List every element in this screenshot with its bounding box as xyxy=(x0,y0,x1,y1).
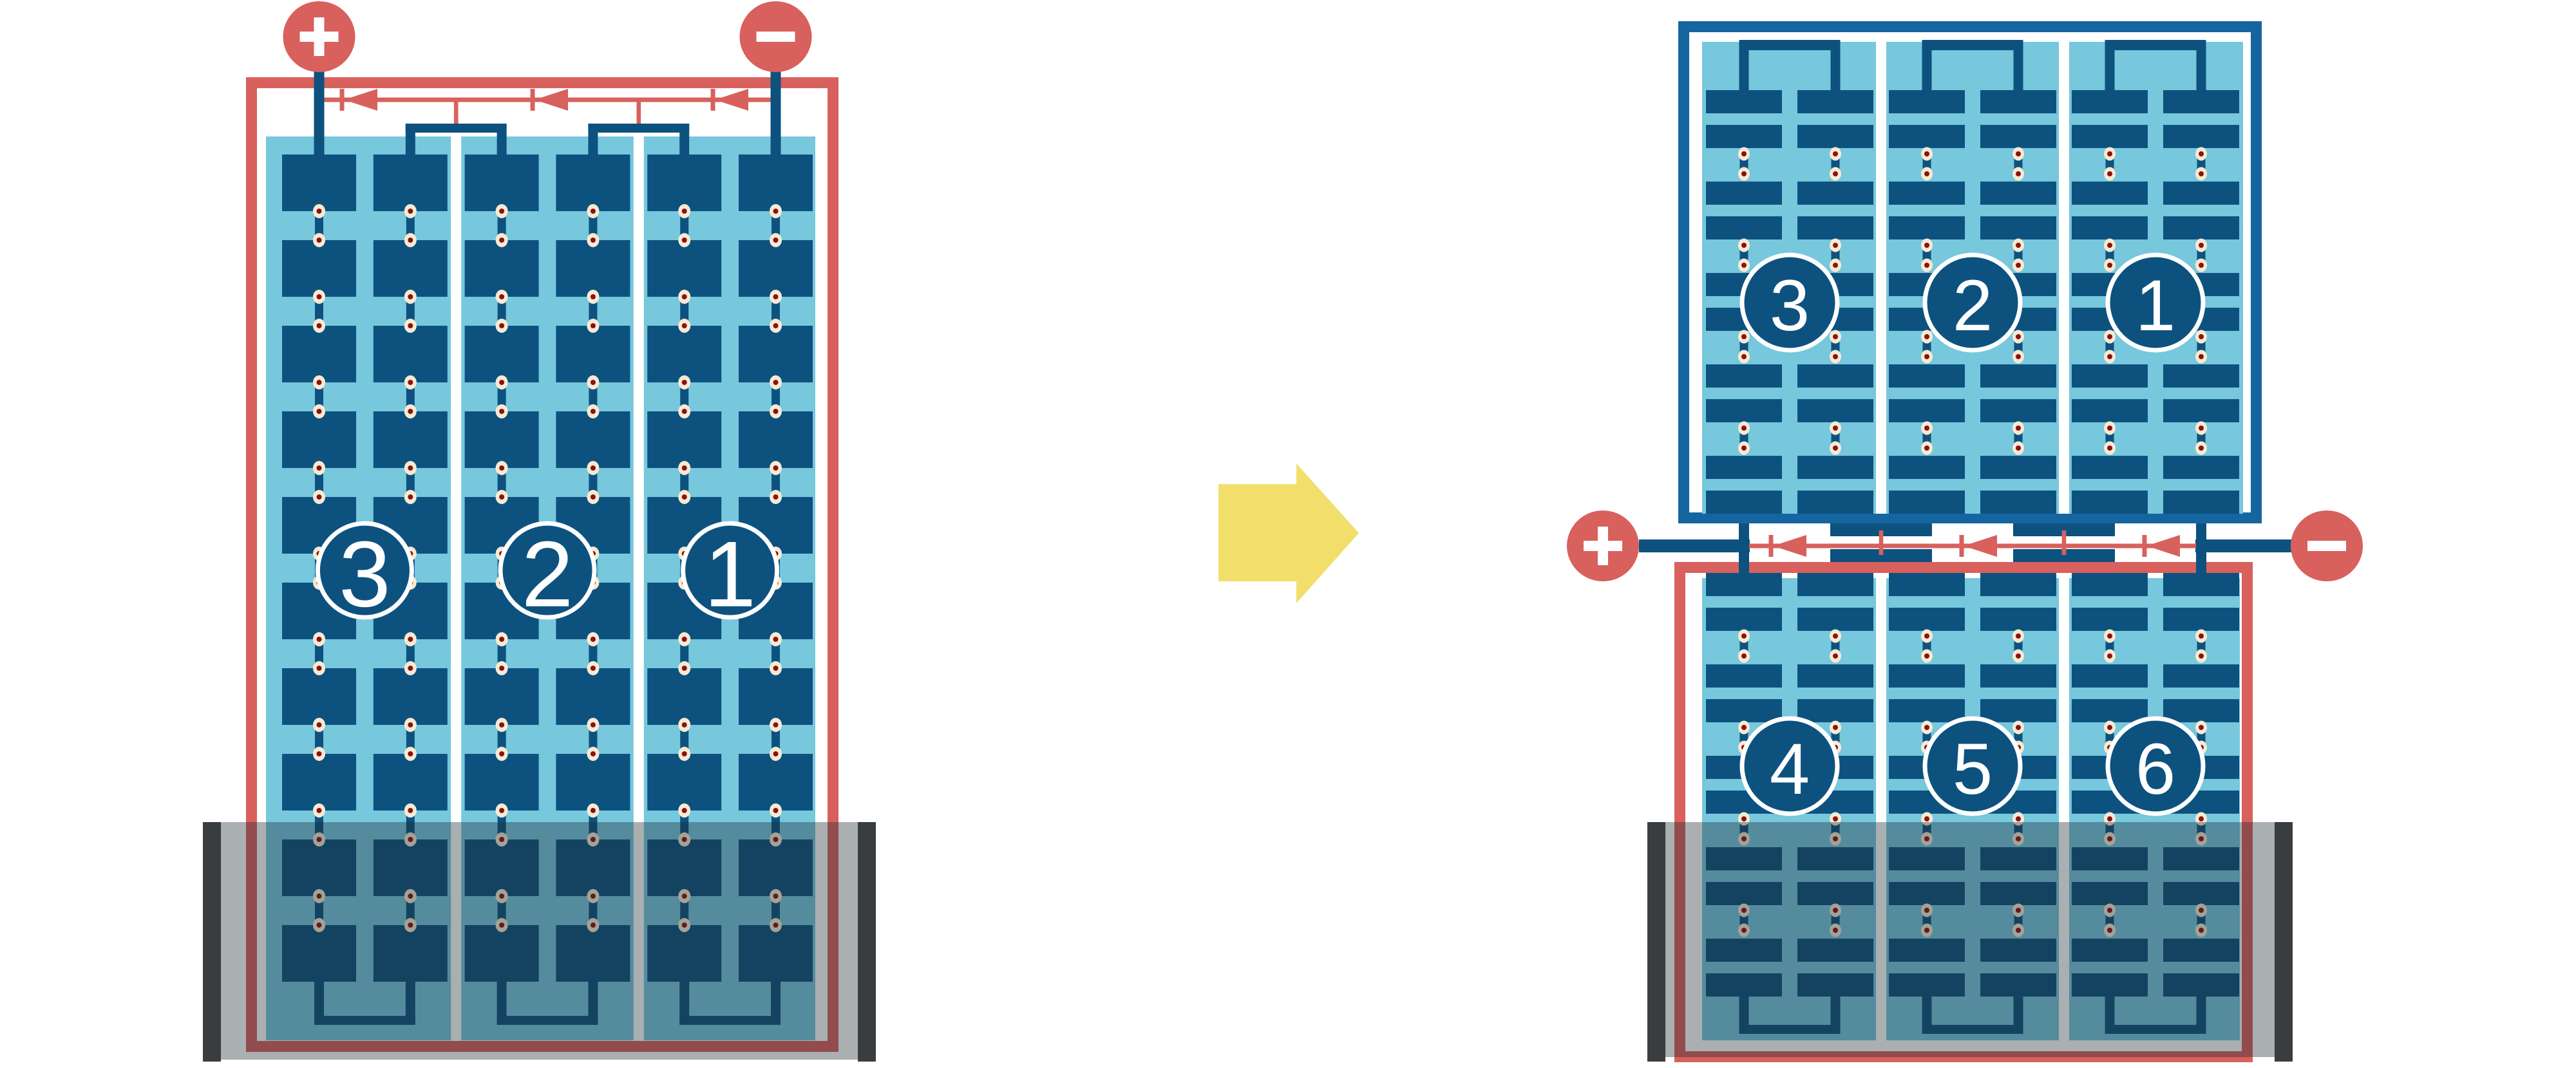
solder-dot-core xyxy=(408,722,413,727)
left-module: 321 xyxy=(203,1,876,1062)
solder-dot-core xyxy=(1833,725,1838,730)
solder-dot-core xyxy=(408,238,413,243)
solar-cell xyxy=(2163,182,2239,205)
solar-cell xyxy=(2072,399,2148,422)
solder-dot-core xyxy=(408,380,413,385)
solder-dot-core xyxy=(682,637,687,642)
solar-cell xyxy=(647,668,721,725)
solar-cell xyxy=(1889,364,1965,388)
solar-cell xyxy=(465,326,539,382)
solar-cell xyxy=(282,668,356,725)
solar-cell xyxy=(2072,216,2148,239)
solar-cell xyxy=(1980,90,2056,113)
solar-cell xyxy=(1797,90,1873,113)
solder-dot-core xyxy=(317,637,322,642)
solder-dot-core xyxy=(2016,263,2021,268)
solder-dot-core xyxy=(499,494,504,500)
solder-dot-core xyxy=(2107,243,2112,248)
solder-dot-core xyxy=(773,238,779,243)
solar-cell xyxy=(1980,664,2056,688)
solder-dot-core xyxy=(499,637,504,642)
terminal-wire xyxy=(1639,539,1750,552)
solar-cell xyxy=(1797,573,1873,596)
string-number-label: 2 xyxy=(522,522,574,626)
solar-cell xyxy=(1980,699,2056,722)
solar-cell xyxy=(2072,664,2148,688)
solder-dot-core xyxy=(1741,426,1747,431)
diode-bus-stub xyxy=(454,100,459,124)
solder-dot-core xyxy=(682,751,687,756)
solar-cell xyxy=(556,411,630,468)
bypass-diode-icon xyxy=(2143,535,2181,557)
solar-cell xyxy=(1706,608,1782,631)
solder-dot-core xyxy=(682,209,687,214)
solder-dot-core xyxy=(317,380,322,385)
diode-cathode-bar xyxy=(2143,535,2147,557)
solar-cell xyxy=(2072,491,2148,514)
solder-dot-core xyxy=(591,238,596,243)
solar-cell xyxy=(374,155,448,211)
solder-dot-core xyxy=(1833,334,1838,339)
solder-dot-core xyxy=(408,323,413,328)
solder-dot-core xyxy=(317,323,322,328)
solder-dot-core xyxy=(1741,725,1747,730)
solder-dot-core xyxy=(317,722,322,727)
plus-terminal xyxy=(1567,511,1639,581)
solar-cell xyxy=(1706,216,1782,239)
solder-dot-core xyxy=(1924,633,1929,639)
jumper-bar xyxy=(2105,40,2206,50)
solar-cell xyxy=(739,668,813,725)
solar-cell xyxy=(1797,216,1873,239)
string-number-badge: 1 xyxy=(2108,255,2203,350)
solder-dot-core xyxy=(1741,445,1747,451)
minus-icon xyxy=(2307,541,2346,551)
plus-icon xyxy=(1598,527,1608,565)
jumper-bar xyxy=(1922,40,2023,50)
solder-dot-core xyxy=(2107,445,2112,451)
solder-dot-core xyxy=(1833,816,1838,821)
shade-overlay xyxy=(1647,822,2293,1057)
bypass-diode-icon xyxy=(531,89,569,111)
jumper-bar xyxy=(588,124,689,133)
solder-dot-core xyxy=(2199,151,2204,156)
solder-dot-core xyxy=(2016,243,2021,248)
solder-dot-core xyxy=(2199,633,2204,639)
solar-cell xyxy=(1889,491,1965,514)
solder-dot-core xyxy=(2199,445,2204,451)
solar-cell xyxy=(1706,664,1782,688)
solar-cell xyxy=(2163,491,2239,514)
solar-cell xyxy=(1797,608,1873,631)
solder-dot-core xyxy=(2199,725,2204,730)
solar-cell xyxy=(1706,456,1782,479)
solder-dot-core xyxy=(773,465,779,471)
solar-cell xyxy=(1889,699,1965,722)
solder-dot-core xyxy=(317,465,322,471)
solar-cell xyxy=(739,240,813,297)
solar-cell xyxy=(1980,491,2056,514)
solder-dot-core xyxy=(2016,633,2021,639)
solar-cell xyxy=(2163,364,2239,388)
solar-cell xyxy=(1980,456,2056,479)
diode-triangle xyxy=(715,89,748,111)
solder-dot-core xyxy=(499,409,504,414)
solar-cell xyxy=(1980,125,2056,148)
solder-dot-core xyxy=(408,494,413,500)
solder-dot-core xyxy=(1924,445,1929,451)
solder-dot-core xyxy=(499,751,504,756)
solder-dot-core xyxy=(499,808,504,813)
flow-arrow-icon xyxy=(1218,464,1359,603)
string-number-label: 3 xyxy=(1770,265,1810,346)
pv-module-shading-diagram: 321342516 xyxy=(0,0,2576,1068)
string-number-badge: 5 xyxy=(1925,718,2020,814)
solar-cell xyxy=(1889,664,1965,688)
solar-cell xyxy=(2072,364,2148,388)
solar-cell xyxy=(556,326,630,382)
solder-dot-core xyxy=(591,751,596,756)
solder-dot-core xyxy=(2016,354,2021,359)
solder-dot-core xyxy=(591,722,596,727)
solar-cell xyxy=(1889,90,1965,113)
solder-dot-core xyxy=(682,294,687,299)
solar-cell xyxy=(1706,125,1782,148)
solar-cell xyxy=(374,411,448,468)
solar-cell xyxy=(2163,216,2239,239)
solar-cell xyxy=(1980,608,2056,631)
solder-dot-core xyxy=(591,380,596,385)
solar-cell xyxy=(647,240,721,297)
solar-cell xyxy=(374,240,448,297)
solar-cell xyxy=(1980,182,2056,205)
solar-cell xyxy=(647,326,721,382)
solar-cell xyxy=(647,155,721,211)
solar-cell xyxy=(556,668,630,725)
solder-dot-core xyxy=(1833,151,1838,156)
string-number-badge: 2 xyxy=(1925,255,2020,350)
solar-cell xyxy=(1706,491,1782,514)
solder-dot-core xyxy=(1833,171,1838,176)
solder-dot-core xyxy=(682,465,687,471)
solder-dot-core xyxy=(682,666,687,671)
string-number-label: 6 xyxy=(2136,729,2175,809)
solar-cell xyxy=(1980,216,2056,239)
solder-dot-core xyxy=(1741,334,1747,339)
diode-bus-stub xyxy=(637,100,641,124)
column-gap xyxy=(2059,42,2069,514)
solder-dot-core xyxy=(591,323,596,328)
solar-cell xyxy=(647,411,721,468)
solder-dot-core xyxy=(2199,243,2204,248)
solder-dot-core xyxy=(591,209,596,214)
shade-post xyxy=(858,822,876,1062)
shade-overlay xyxy=(203,822,876,1060)
diode-cathode-bar xyxy=(531,89,535,111)
jumper-bar xyxy=(406,124,507,133)
column-gap xyxy=(1876,42,1886,514)
solder-dot-core xyxy=(317,409,322,414)
diode-bus-stub xyxy=(1879,530,1884,555)
solar-cell xyxy=(1889,182,1965,205)
solder-dot-core xyxy=(1833,653,1838,659)
solder-dot-core xyxy=(499,294,504,299)
solder-dot-core xyxy=(408,666,413,671)
solar-cell xyxy=(1889,456,1965,479)
solder-dot-core xyxy=(2016,334,2021,339)
solder-dot-core xyxy=(1741,354,1747,359)
string-number-label: 1 xyxy=(2136,265,2175,346)
solder-dot-core xyxy=(499,666,504,671)
solder-dot-core xyxy=(2107,816,2112,821)
solder-dot-core xyxy=(2107,354,2112,359)
solder-dot-core xyxy=(591,494,596,500)
bypass-diode-icon xyxy=(711,89,749,111)
solder-dot-core xyxy=(2107,334,2112,339)
string-number-label: 3 xyxy=(339,522,391,626)
solder-dot-core xyxy=(2016,151,2021,156)
solar-cell xyxy=(282,754,356,810)
solder-dot-core xyxy=(591,409,596,414)
diode-triangle xyxy=(1964,535,1997,557)
solar-cell xyxy=(282,240,356,297)
solder-dot-core xyxy=(1924,334,1929,339)
solar-cell xyxy=(647,754,721,810)
solder-dot-core xyxy=(682,808,687,813)
solar-cell xyxy=(1706,182,1782,205)
solar-cell xyxy=(465,668,539,725)
solder-dot-core xyxy=(499,323,504,328)
minus-terminal xyxy=(740,1,812,72)
solder-dot-core xyxy=(499,465,504,471)
solder-dot-core xyxy=(499,209,504,214)
solar-cell xyxy=(374,668,448,725)
string-number-badge: 4 xyxy=(1742,718,1837,814)
solder-dot-core xyxy=(408,409,413,414)
solar-cell xyxy=(1797,664,1873,688)
diode-bus-stub xyxy=(2062,530,2067,555)
solder-dot-core xyxy=(2016,725,2021,730)
solar-cell xyxy=(2072,90,2148,113)
solder-dot-core xyxy=(682,494,687,500)
solder-dot-core xyxy=(2199,426,2204,431)
solder-dot-core xyxy=(2199,816,2204,821)
solder-dot-core xyxy=(408,637,413,642)
diode-triangle xyxy=(1773,535,1806,557)
solder-dot-core xyxy=(773,409,779,414)
solder-dot-core xyxy=(1833,354,1838,359)
solder-dot-core xyxy=(591,465,596,471)
solder-dot-core xyxy=(408,294,413,299)
terminal-wire xyxy=(314,63,325,169)
solder-dot-core xyxy=(773,323,779,328)
solder-dot-core xyxy=(682,323,687,328)
diode-cathode-bar xyxy=(340,89,345,111)
solar-cell xyxy=(2163,664,2239,688)
diode-cathode-bar xyxy=(1960,535,1964,557)
solar-cell xyxy=(1980,399,2056,422)
solar-cell xyxy=(1706,699,1782,722)
solder-dot-core xyxy=(1924,263,1929,268)
diode-triangle xyxy=(535,89,568,111)
solar-cell xyxy=(465,240,539,297)
solder-dot-core xyxy=(773,294,779,299)
solar-cell xyxy=(465,155,539,211)
solar-cell xyxy=(1889,399,1965,422)
solar-cell xyxy=(1889,216,1965,239)
diode-triangle xyxy=(2146,535,2180,557)
solder-dot-core xyxy=(2107,151,2112,156)
right-module: 342516 xyxy=(1567,27,2363,1062)
solder-dot-core xyxy=(2199,653,2204,659)
solder-dot-core xyxy=(773,722,779,727)
solder-dot-core xyxy=(2016,171,2021,176)
jumper-bar xyxy=(1739,40,1841,50)
solder-dot-core xyxy=(591,637,596,642)
solar-cell xyxy=(2072,573,2148,596)
string-number-label: 4 xyxy=(1770,729,1810,809)
solder-dot-core xyxy=(591,808,596,813)
solar-cell xyxy=(1797,399,1873,422)
solder-dot-core xyxy=(408,209,413,214)
solder-dot-core xyxy=(2107,426,2112,431)
solar-cell xyxy=(374,754,448,810)
solar-cell xyxy=(556,155,630,211)
solder-dot-core xyxy=(2107,725,2112,730)
solar-cell xyxy=(2163,608,2239,631)
solder-dot-core xyxy=(591,294,596,299)
shade-post xyxy=(1647,822,1665,1062)
solder-dot-core xyxy=(2016,816,2021,821)
solder-dot-core xyxy=(317,751,322,756)
solder-dot-core xyxy=(773,380,779,385)
solder-dot-core xyxy=(682,238,687,243)
string-number-label: 2 xyxy=(1953,265,1993,346)
solder-dot-core xyxy=(773,209,779,214)
solar-cell xyxy=(2072,182,2148,205)
solar-cell xyxy=(1797,182,1873,205)
solder-dot-core xyxy=(2199,354,2204,359)
solder-dot-core xyxy=(2016,653,2021,659)
string-number-label: 5 xyxy=(1953,729,1993,809)
solar-cell xyxy=(374,326,448,382)
solar-cell xyxy=(1797,491,1873,514)
solar-cell xyxy=(739,754,813,810)
solar-cell xyxy=(2163,699,2239,722)
solder-dot-core xyxy=(1741,816,1747,821)
terminal-wire xyxy=(771,63,781,169)
solder-dot-core xyxy=(1741,263,1747,268)
solder-dot-core xyxy=(1924,653,1929,659)
solder-dot-core xyxy=(591,666,596,671)
solar-cell xyxy=(739,411,813,468)
solar-cell xyxy=(2072,456,2148,479)
solar-cell xyxy=(556,754,630,810)
solder-dot-core xyxy=(1833,633,1838,639)
solder-dot-core xyxy=(1741,171,1747,176)
bypass-diode-icon xyxy=(1769,535,1807,557)
solar-cell xyxy=(465,411,539,468)
solar-cell xyxy=(2163,125,2239,148)
solder-dot-core xyxy=(2016,426,2021,431)
solder-dot-core xyxy=(408,808,413,813)
solder-dot-core xyxy=(2107,653,2112,659)
solder-dot-core xyxy=(2199,334,2204,339)
solar-cell xyxy=(1797,364,1873,388)
solder-dot-core xyxy=(317,808,322,813)
solder-dot-core xyxy=(1741,633,1747,639)
solder-dot-core xyxy=(773,637,779,642)
solder-dot-core xyxy=(2107,633,2112,639)
plus-terminal xyxy=(283,1,355,72)
solar-cell xyxy=(2163,456,2239,479)
solder-dot-core xyxy=(2199,263,2204,268)
solder-dot-core xyxy=(1924,171,1929,176)
bypass-diode-icon xyxy=(340,89,378,111)
plus-icon xyxy=(314,17,325,56)
solar-cell xyxy=(2072,608,2148,631)
bypass-diode-icon xyxy=(1960,535,1998,557)
solar-cell xyxy=(465,754,539,810)
solar-cell xyxy=(556,240,630,297)
solar-cell xyxy=(1706,90,1782,113)
solder-dot-core xyxy=(2107,171,2112,176)
solder-dot-core xyxy=(1924,816,1929,821)
solder-dot-core xyxy=(682,380,687,385)
solder-dot-core xyxy=(317,238,322,243)
solar-cell xyxy=(1706,364,1782,388)
solder-dot-core xyxy=(773,808,779,813)
solar-cell xyxy=(1889,608,1965,631)
string-number-badge: 3 xyxy=(1742,255,1837,350)
solar-cell xyxy=(282,411,356,468)
solder-dot-core xyxy=(1924,243,1929,248)
solder-dot-core xyxy=(682,722,687,727)
solder-dot-core xyxy=(1924,354,1929,359)
solder-dot-core xyxy=(1833,426,1838,431)
shade-post xyxy=(2275,822,2293,1062)
solder-dot-core xyxy=(773,751,779,756)
solder-dot-core xyxy=(499,722,504,727)
solder-dot-core xyxy=(1741,243,1747,248)
solar-cell xyxy=(1889,573,1965,596)
solder-dot-core xyxy=(682,409,687,414)
solder-dot-core xyxy=(317,294,322,299)
shade-post xyxy=(203,822,221,1062)
solder-dot-core xyxy=(2199,171,2204,176)
solder-dot-core xyxy=(499,238,504,243)
diode-triangle xyxy=(344,89,377,111)
solder-dot-core xyxy=(1741,151,1747,156)
string-number-badge: 6 xyxy=(2108,718,2203,814)
solar-cell xyxy=(1797,456,1873,479)
solder-dot-core xyxy=(1741,653,1747,659)
solder-dot-core xyxy=(317,666,322,671)
solar-cell xyxy=(1797,125,1873,148)
solder-dot-core xyxy=(2016,445,2021,451)
solder-dot-core xyxy=(317,209,322,214)
solder-dot-core xyxy=(317,494,322,500)
solder-dot-core xyxy=(499,380,504,385)
diode-cathode-bar xyxy=(711,89,715,111)
solder-dot-core xyxy=(773,494,779,500)
solar-cell xyxy=(2072,699,2148,722)
solar-cell xyxy=(282,326,356,382)
solar-cell xyxy=(1980,364,2056,388)
diode-cathode-bar xyxy=(1769,535,1774,557)
solar-cell xyxy=(1889,125,1965,148)
solar-cell xyxy=(2163,399,2239,422)
